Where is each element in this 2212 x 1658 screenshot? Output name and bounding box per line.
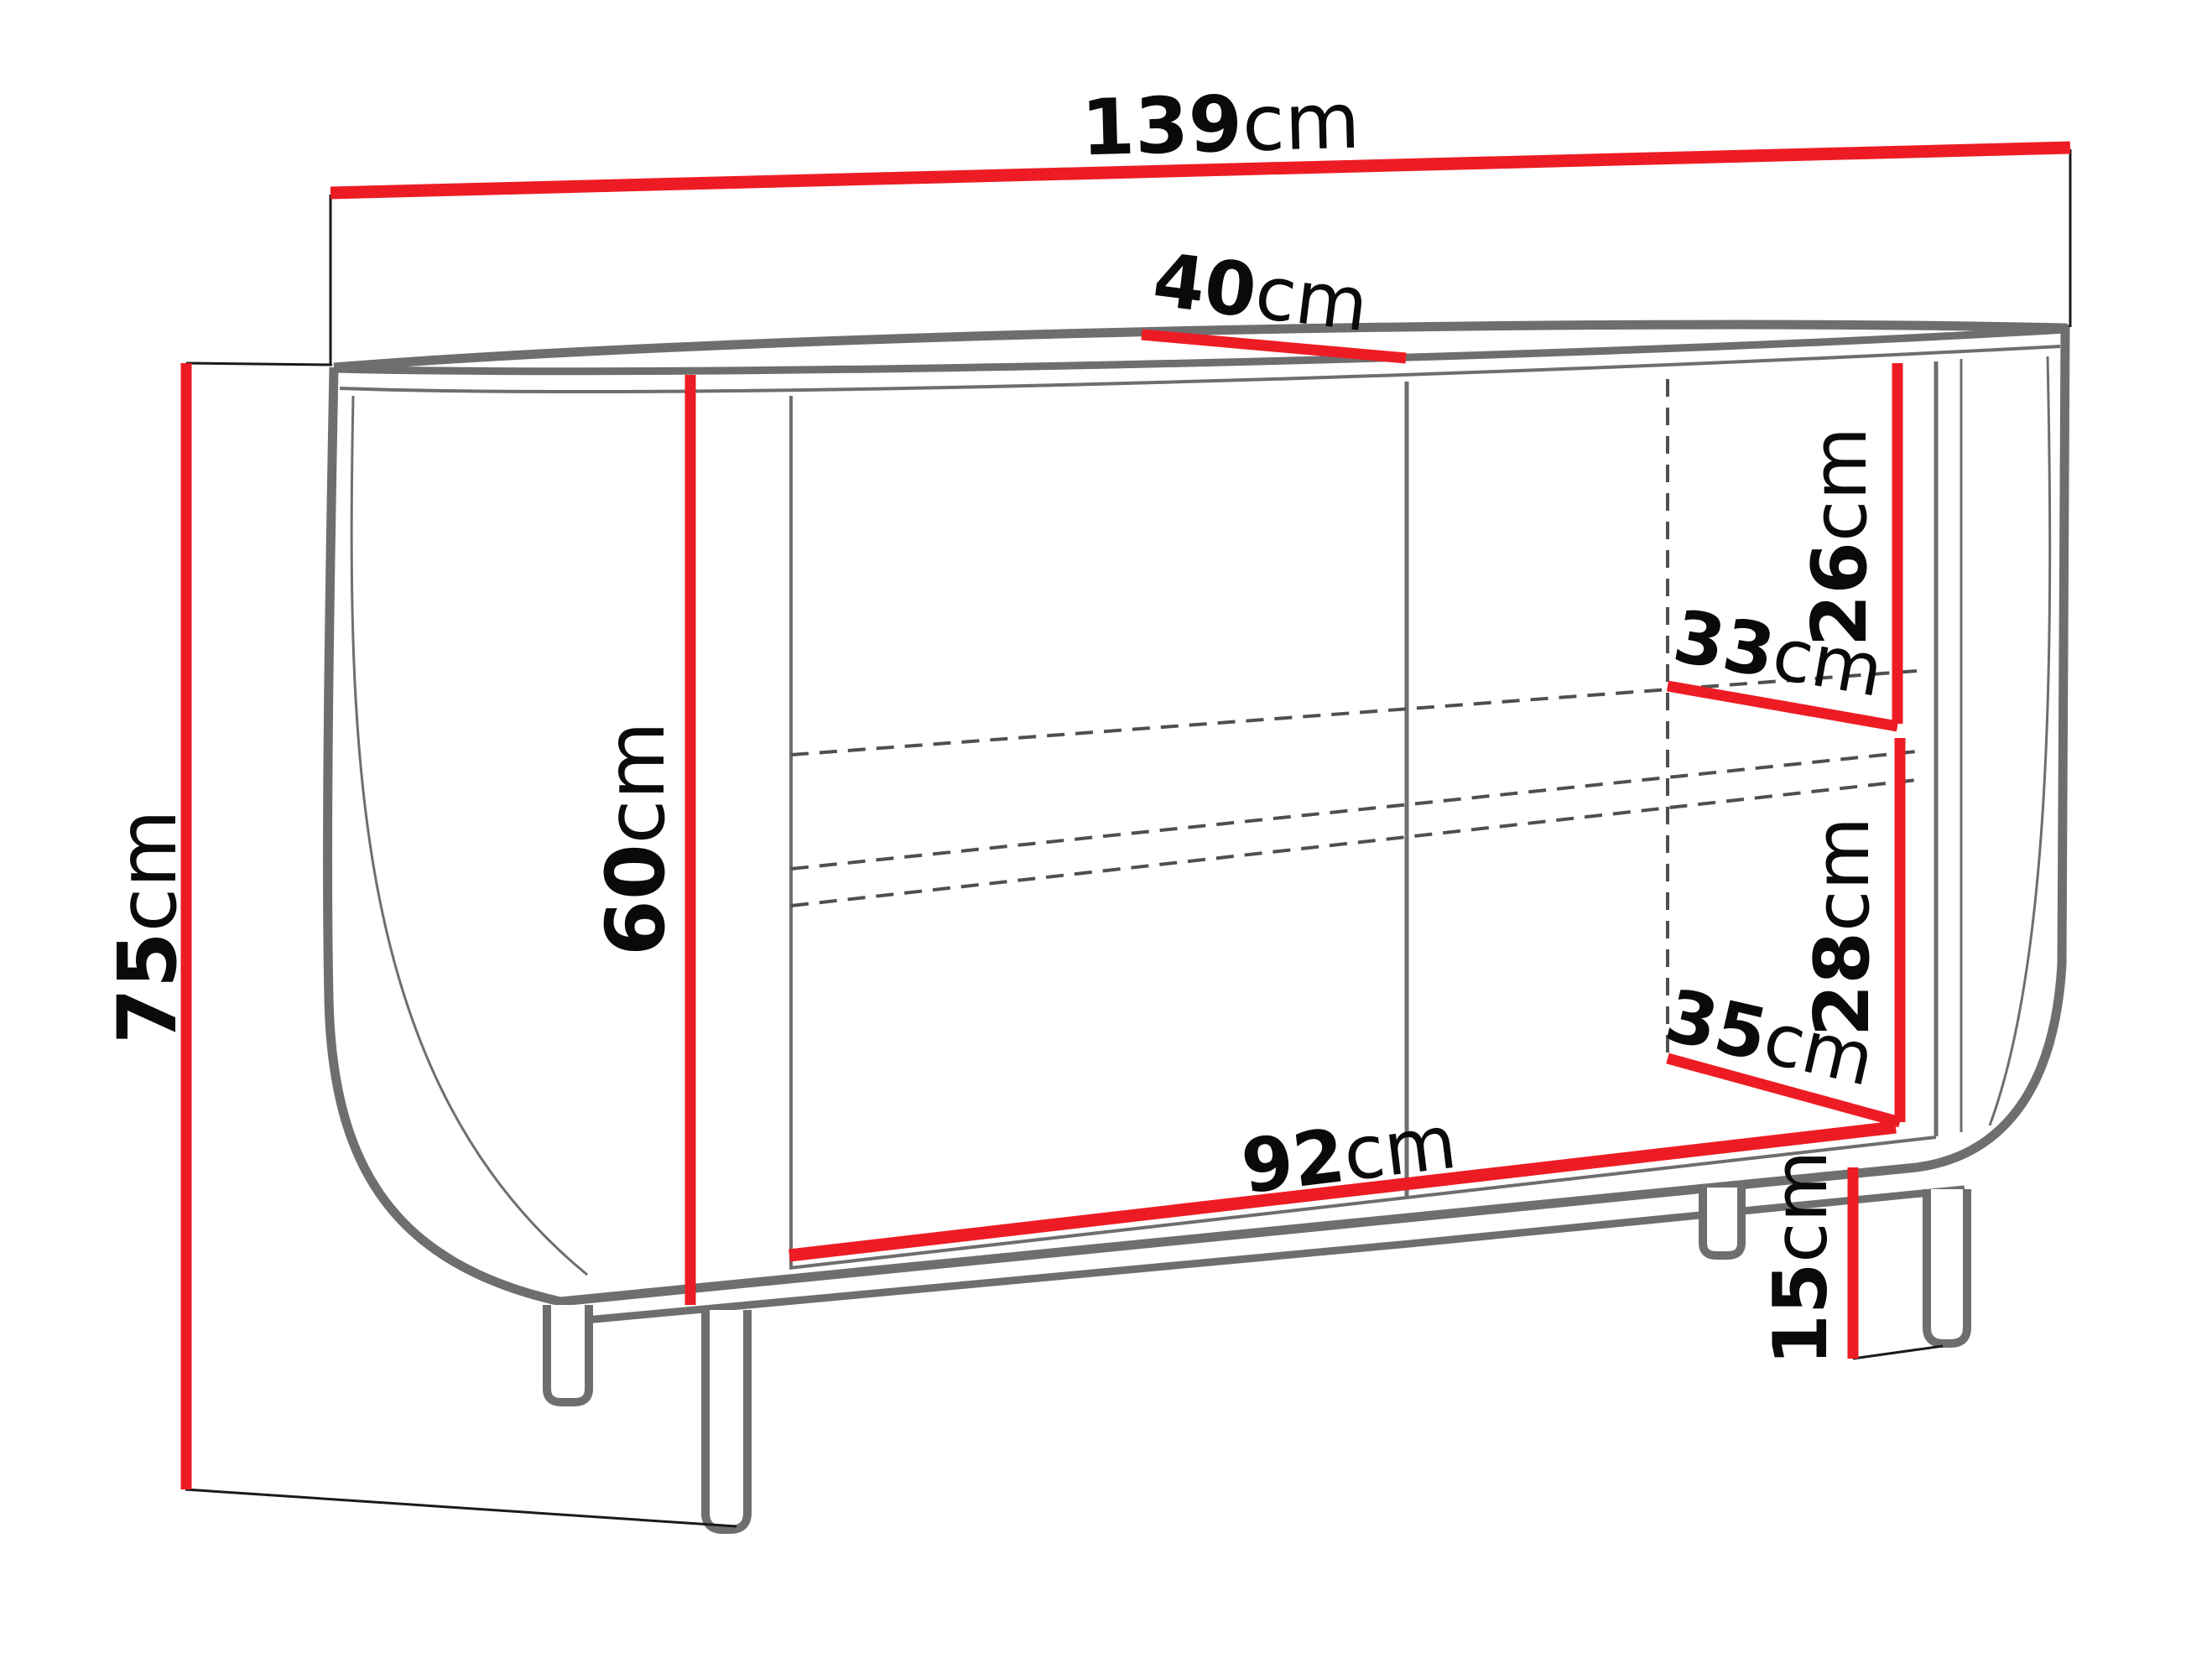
dim-label-body-height: 60cm <box>589 721 683 956</box>
sideboard-dimension-drawing: 139cm 40cm 75cm 60cm 26cm 33cm 28cm 35cm… <box>0 0 2212 1658</box>
shelf-front-bottom-edge-dashed <box>791 780 1917 906</box>
shelf-front-top-edge-dashed <box>791 751 1917 869</box>
leg-front-right <box>1927 1189 1967 1344</box>
cabinet-legs <box>547 1188 1967 1530</box>
dim-line-depth-40 <box>1142 335 1406 358</box>
end-panel-inner-right <box>1990 356 2050 1125</box>
dim-label-niche-lower-height: 28cm <box>1798 817 1887 1037</box>
ext-height-top <box>186 363 332 365</box>
ext-leg-bottom <box>1853 1346 1943 1359</box>
dim-label-interior-width: 92cm <box>1236 1098 1460 1210</box>
leg-back-left <box>547 1305 589 1402</box>
dim-label-niche-upper-height: 26cm <box>1796 427 1884 647</box>
cabinet-base-edge <box>549 1189 1965 1323</box>
leg-back-right <box>1703 1188 1741 1255</box>
end-panel-inner-left <box>351 396 587 1275</box>
diagram-canvas: 139cm 40cm 75cm 60cm 26cm 33cm 28cm 35cm… <box>0 0 2212 1658</box>
ground-line-left <box>185 1489 736 1526</box>
hidden-shelf-lines <box>791 379 1917 1058</box>
dim-label-leg-height: 15cm <box>1757 1151 1844 1366</box>
dim-label-width: 139cm <box>1080 75 1361 173</box>
leg-front-left <box>705 1310 747 1530</box>
dim-label-height: 75cm <box>101 809 195 1044</box>
